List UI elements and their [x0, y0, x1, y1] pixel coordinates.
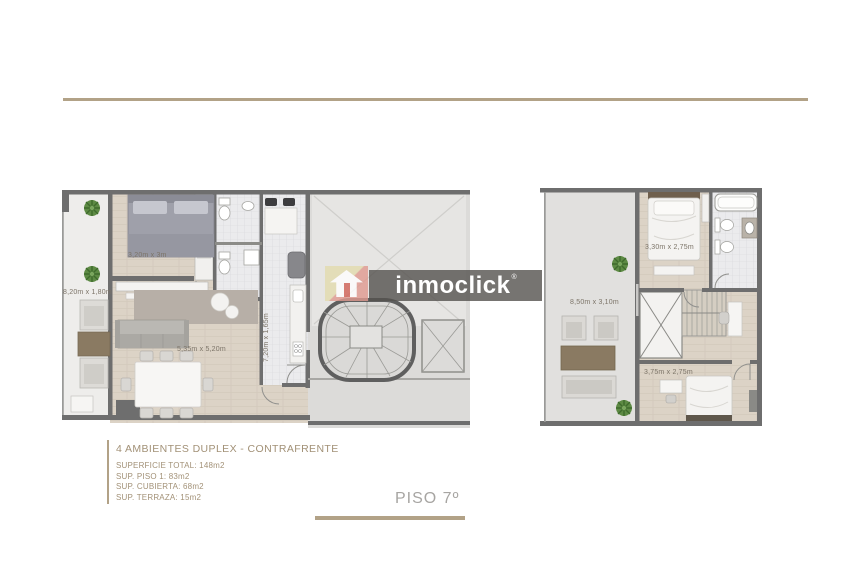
- house-arrow-icon: [325, 266, 368, 301]
- elevator: [422, 320, 464, 372]
- dim-bedroom3: 3,75m x 2,75m: [644, 369, 693, 376]
- dim-balcony: 8,20m x 1,80m: [63, 289, 112, 296]
- top-divider-line: [63, 98, 808, 101]
- dim-kitchen: 7,20m x 1,65m: [263, 313, 270, 362]
- desk2: [660, 380, 682, 393]
- tv-unit: [116, 282, 208, 291]
- floor-number-label: PISO 7º: [395, 490, 459, 508]
- dim-living: 5,35m x 5,20m: [177, 346, 226, 353]
- plant-icon: [84, 266, 100, 282]
- brand-name: inmoclick: [395, 274, 510, 298]
- bed-lower: [686, 376, 732, 421]
- unit-title: 4 AMBIENTES DUPLEX - CONTRAFRENTE: [116, 443, 339, 455]
- terrace-door: [636, 284, 639, 316]
- dim-bedroom2: 3,30m x 2,75m: [645, 244, 694, 251]
- spec-total: SUPERFICIE TOTAL: 148m2: [116, 461, 225, 472]
- spec-piso1: SUP. PISO 1: 83m2: [116, 472, 225, 483]
- floorplan-page: 3,20m x 3m 8,20m x 1,80m 5,35m x 5,20m 7…: [0, 0, 866, 576]
- info-accent-line: [107, 440, 109, 504]
- sofa: [115, 320, 189, 348]
- plant-icon: [612, 256, 628, 272]
- dim-terrace: 8,50m x 3,10m: [570, 299, 619, 306]
- floor-label-underline: [315, 516, 465, 520]
- rug: [134, 290, 258, 324]
- wall-unit: [749, 390, 757, 412]
- bed-main: [128, 195, 214, 257]
- floor2-plan: [536, 184, 764, 430]
- desk2-chair: [666, 395, 676, 403]
- surface-specs: SUPERFICIE TOTAL: 148m2 SUP. PISO 1: 83m…: [116, 461, 225, 503]
- watermark-text-box: inmoclick®: [369, 270, 542, 301]
- floor1-plan: [62, 190, 470, 430]
- inmoclick-watermark: inmoclick®: [325, 266, 542, 301]
- desk-chair: [719, 312, 729, 324]
- floor1-plan-drawing: [62, 190, 470, 430]
- bench: [654, 266, 694, 275]
- spec-terraza: SUP. TERRAZA: 15m2: [116, 493, 225, 504]
- closet: [702, 194, 709, 222]
- desk: [728, 302, 742, 336]
- spec-cubierta: SUP. CUBIERTA: 68m2: [116, 482, 225, 493]
- plant-icon: [616, 400, 632, 416]
- plant-icon: [84, 200, 100, 216]
- circular-stair: [320, 300, 414, 380]
- registered-mark: ®: [512, 274, 517, 281]
- dim-bedroom1: 3,20m x 3m: [128, 252, 167, 259]
- floor2-plan-drawing: [536, 184, 764, 430]
- void-area: [640, 292, 682, 358]
